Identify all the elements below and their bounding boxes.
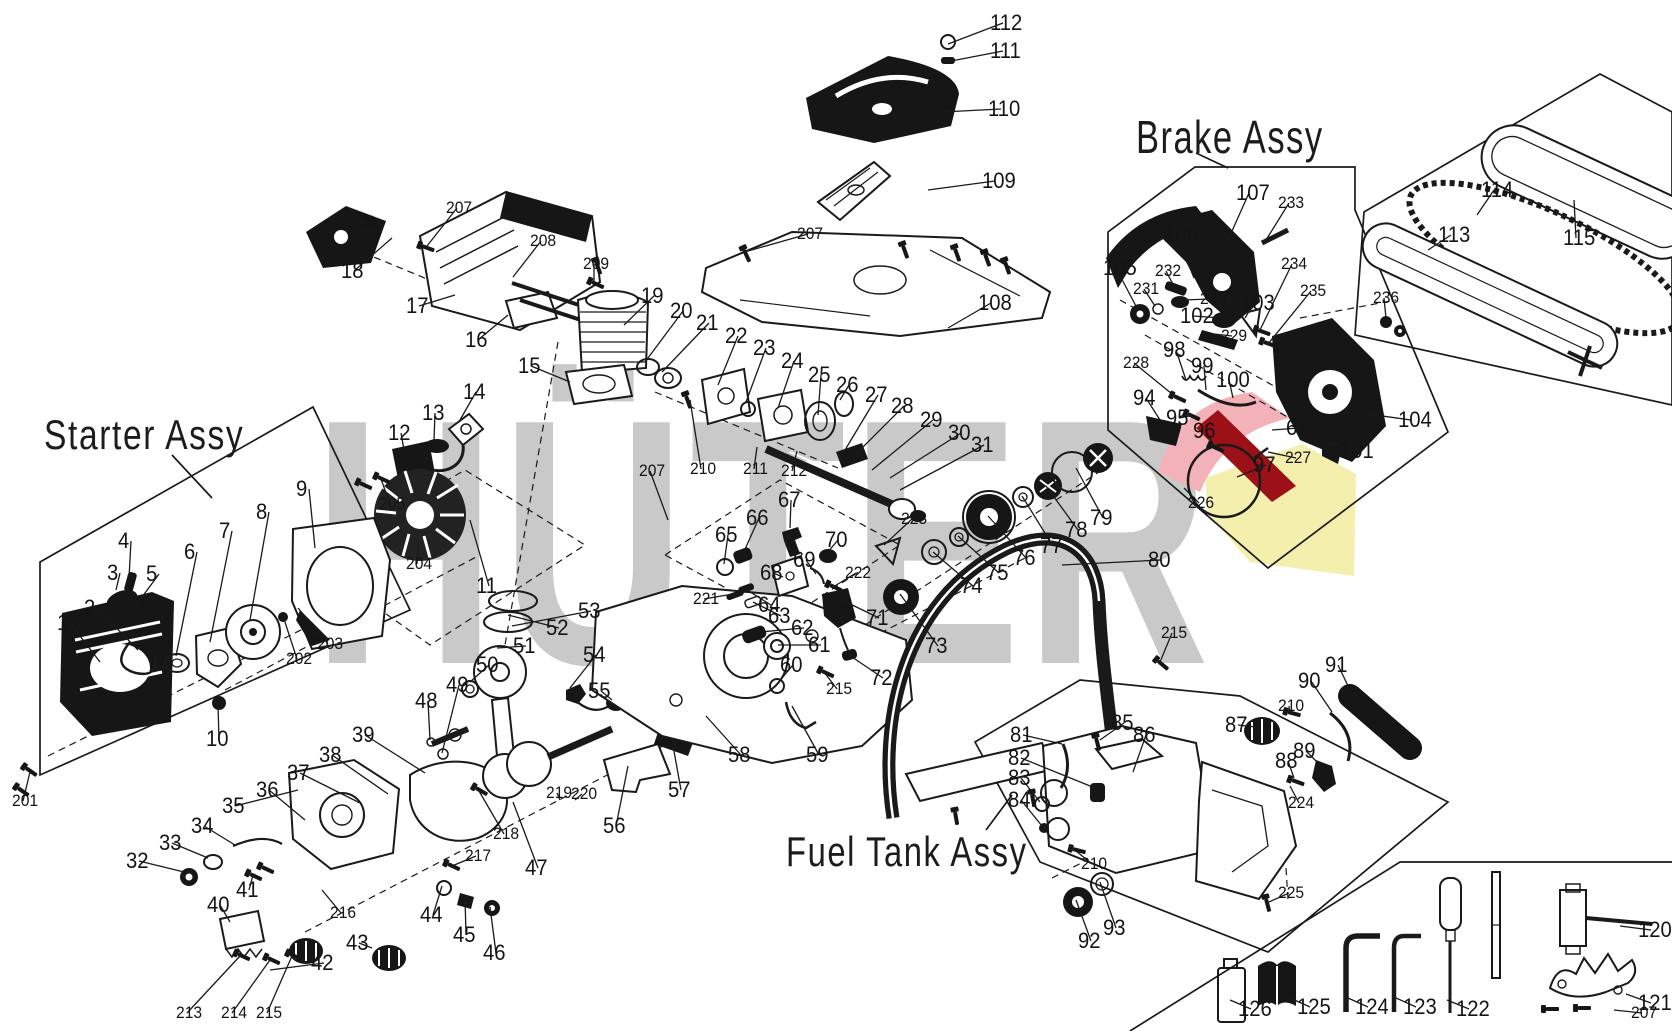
part-label-218: 218: [493, 825, 519, 842]
part-label-227: 227: [1285, 449, 1311, 466]
part-label-57: 57: [668, 779, 691, 801]
part-label-40: 40: [207, 894, 230, 916]
part-label-46: 46: [483, 942, 506, 964]
part-label-210: 210: [690, 460, 716, 477]
part-label-17: 17: [406, 295, 429, 317]
part-label-207: 207: [639, 462, 665, 479]
part-label-38: 38: [319, 744, 342, 766]
part-label-215: 215: [256, 1004, 282, 1021]
part-label-75: 75: [986, 562, 1009, 584]
part-label-39: 39: [352, 724, 375, 746]
part-label-98: 98: [1163, 339, 1186, 361]
part-label-14: 14: [463, 381, 486, 403]
part-label-94: 94: [1133, 387, 1156, 409]
part-label-223: 223: [901, 510, 927, 527]
part-label-26: 26: [836, 374, 859, 396]
part-label-36: 36: [256, 779, 279, 801]
part-label-12: 12: [388, 422, 411, 444]
part-label-201: 201: [12, 792, 38, 809]
part-label-8: 8: [256, 501, 267, 523]
part-label-111: 111: [990, 40, 1021, 62]
part-label-219: 219: [546, 784, 572, 801]
leader-line-9: [309, 489, 315, 548]
leader-line-1: [70, 623, 100, 662]
part-label-207: 207: [1631, 1004, 1657, 1021]
part-label-206: 206: [349, 213, 375, 230]
part-label-109: 109: [982, 170, 1016, 192]
part-label-120: 120: [1638, 919, 1672, 941]
part-label-124: 124: [1355, 996, 1389, 1018]
part-label-20: 20: [670, 300, 693, 322]
part-label-34: 34: [191, 815, 214, 837]
part-label-72: 72: [870, 667, 893, 689]
part-label-231: 231: [1133, 280, 1159, 297]
part-label-95: 95: [1166, 407, 1189, 429]
part-label-31: 31: [971, 434, 994, 456]
part-label-15: 15: [518, 355, 541, 377]
part-label-68: 68: [760, 562, 783, 584]
part-label-52: 52: [546, 617, 569, 639]
part-label-56: 56: [603, 815, 626, 837]
part-label-202: 202: [286, 650, 312, 667]
part-label-126: 126: [1238, 998, 1272, 1020]
part-label-27: 27: [865, 384, 888, 406]
part-label-204: 204: [406, 555, 432, 572]
part-label-77: 77: [1040, 535, 1063, 557]
fuel-tank-assy-title: Fuel Tank Assy: [786, 828, 1028, 876]
part-label-54: 54: [583, 644, 606, 666]
part-label-3: 3: [107, 562, 118, 584]
part-label-64: 64: [758, 594, 781, 616]
leader-line-80: [1062, 560, 1161, 565]
part-label-84: 84: [1008, 789, 1031, 811]
part-label-62: 62: [791, 617, 814, 639]
part-label-222: 222: [845, 564, 871, 581]
part-label-105: 105: [1103, 257, 1137, 279]
part-label-210: 210: [1081, 855, 1107, 872]
part-label-50: 50: [476, 654, 499, 676]
part-label-100: 100: [1216, 369, 1250, 391]
part-label-90: 90: [1298, 670, 1321, 692]
part-label-58: 58: [728, 744, 751, 766]
part-label-62: 62: [1286, 417, 1309, 439]
part-label-220: 220: [571, 785, 597, 802]
part-label-71: 71: [866, 607, 889, 629]
leader-line-7: [210, 531, 232, 642]
part-label-232: 232: [1155, 262, 1181, 279]
part-label-74: 74: [960, 575, 983, 597]
part-label-67: 67: [778, 489, 801, 511]
part-label-122: 122: [1456, 998, 1490, 1020]
brake-assy-title: Brake Assy: [1136, 110, 1324, 164]
part-label-86: 86: [1133, 724, 1156, 746]
part-label-65: 65: [715, 524, 738, 546]
part-label-49: 49: [446, 674, 469, 696]
part-label-79: 79: [1090, 507, 1113, 529]
part-label-76: 76: [1013, 547, 1036, 569]
part-label-91: 91: [1325, 654, 1348, 676]
part-label-215: 215: [1161, 624, 1187, 641]
part-label-53: 53: [578, 600, 601, 622]
part-label-43: 43: [346, 932, 369, 954]
part-label-16: 16: [465, 329, 488, 351]
part-label-217: 217: [465, 847, 491, 864]
part-label-107: 107: [1236, 182, 1270, 204]
part-label-4: 4: [118, 530, 129, 552]
part-label-60: 60: [780, 654, 803, 676]
part-label-215: 215: [826, 680, 852, 697]
part-label-19: 19: [641, 285, 664, 307]
part-label-205: 205: [379, 495, 405, 512]
part-label-41: 41: [236, 879, 259, 901]
part-label-224: 224: [1288, 794, 1314, 811]
part-label-48: 48: [415, 690, 438, 712]
leader-line-8: [250, 512, 269, 620]
part-label-78: 78: [1065, 519, 1088, 541]
part-label-83: 83: [1008, 767, 1031, 789]
part-label-108: 108: [978, 292, 1012, 314]
part-label-234: 234: [1281, 255, 1307, 272]
part-label-7: 7: [219, 520, 230, 542]
part-label-87: 87: [1225, 714, 1248, 736]
part-label-226: 226: [1188, 494, 1214, 511]
part-label-35: 35: [222, 795, 245, 817]
part-label-89: 89: [1293, 740, 1316, 762]
part-label-125: 125: [1297, 996, 1331, 1018]
part-label-73: 73: [925, 635, 948, 657]
part-label-13: 13: [422, 402, 445, 424]
part-label-208: 208: [530, 232, 556, 249]
part-label-214: 214: [221, 1004, 247, 1021]
part-label-112: 112: [990, 12, 1022, 34]
part-label-55: 55: [588, 680, 611, 702]
part-label-211: 211: [743, 460, 768, 477]
part-label-25: 25: [808, 364, 831, 386]
part-label-101: 101: [1340, 440, 1374, 462]
part-label-210: 210: [1278, 697, 1304, 714]
part-label-99: 99: [1191, 355, 1214, 377]
part-label-5: 5: [146, 563, 157, 585]
part-label-6: 6: [184, 541, 195, 563]
part-label-69: 69: [793, 549, 816, 571]
part-label-10: 10: [206, 728, 229, 750]
part-label-102: 102: [1180, 305, 1214, 327]
part-label-24: 24: [781, 350, 804, 372]
part-label-97: 97: [1253, 454, 1276, 476]
part-label-47: 47: [525, 857, 548, 879]
part-label-42: 42: [311, 952, 334, 974]
part-label-21: 21: [696, 312, 719, 334]
part-label-203: 203: [317, 635, 343, 652]
starter-assy-title: Starter Assy: [44, 411, 244, 459]
part-label-30: 30: [948, 422, 971, 444]
part-label-28: 28: [891, 395, 914, 417]
part-label-236: 236: [1373, 289, 1399, 306]
part-label-80: 80: [1148, 549, 1171, 571]
part-label-18: 18: [341, 260, 364, 282]
part-label-103: 103: [1241, 292, 1275, 314]
part-label-93: 93: [1103, 917, 1126, 939]
part-label-106: 106: [1164, 224, 1198, 246]
part-label-216: 216: [330, 904, 356, 921]
part-label-115: 115: [1563, 227, 1595, 249]
part-label-207: 207: [446, 199, 472, 216]
leader-line-4: [129, 541, 131, 578]
part-label-113: 113: [1438, 224, 1470, 246]
part-label-23: 23: [753, 337, 776, 359]
leader-line-82: [1021, 758, 1095, 788]
part-label-92: 92: [1078, 930, 1101, 952]
part-label-209: 209: [583, 255, 609, 272]
part-label-114: 114: [1481, 179, 1513, 201]
part-label-1: 1: [57, 612, 68, 634]
part-label-225: 225: [1278, 884, 1304, 901]
part-label-123: 123: [1403, 996, 1437, 1018]
part-label-85: 85: [1111, 712, 1134, 734]
part-label-2: 2: [84, 597, 95, 619]
part-label-22: 22: [725, 325, 748, 347]
part-label-213: 213: [176, 1004, 202, 1021]
part-label-44: 44: [420, 904, 443, 926]
part-label-110: 110: [988, 98, 1020, 120]
part-label-37: 37: [287, 762, 310, 784]
part-label-9: 9: [296, 478, 307, 500]
part-label-59: 59: [806, 744, 829, 766]
part-label-29: 29: [920, 409, 943, 431]
part-label-32: 32: [126, 850, 149, 872]
part-label-233: 233: [1278, 194, 1304, 211]
part-label-96: 96: [1193, 420, 1216, 442]
part-label-212: 212: [781, 462, 807, 479]
exploded-parts-diagram: HÜTER: [0, 0, 1672, 1031]
part-label-230: 230: [1200, 290, 1226, 307]
part-label-229: 229: [1221, 327, 1247, 344]
part-label-45: 45: [453, 924, 476, 946]
part-label-228: 228: [1123, 354, 1149, 371]
leader-line-6: [176, 552, 197, 656]
part-label-70: 70: [825, 529, 848, 551]
part-label-33: 33: [159, 832, 182, 854]
part-label-207: 207: [797, 225, 823, 242]
part-label-81: 81: [1010, 724, 1033, 746]
part-label-51: 51: [513, 635, 536, 657]
part-label-66: 66: [746, 507, 769, 529]
part-label-11: 11: [476, 575, 497, 597]
part-label-221: 221: [693, 590, 719, 607]
leader-line-2: [97, 608, 138, 650]
part-label-235: 235: [1300, 282, 1326, 299]
part-label-104: 104: [1398, 409, 1432, 431]
